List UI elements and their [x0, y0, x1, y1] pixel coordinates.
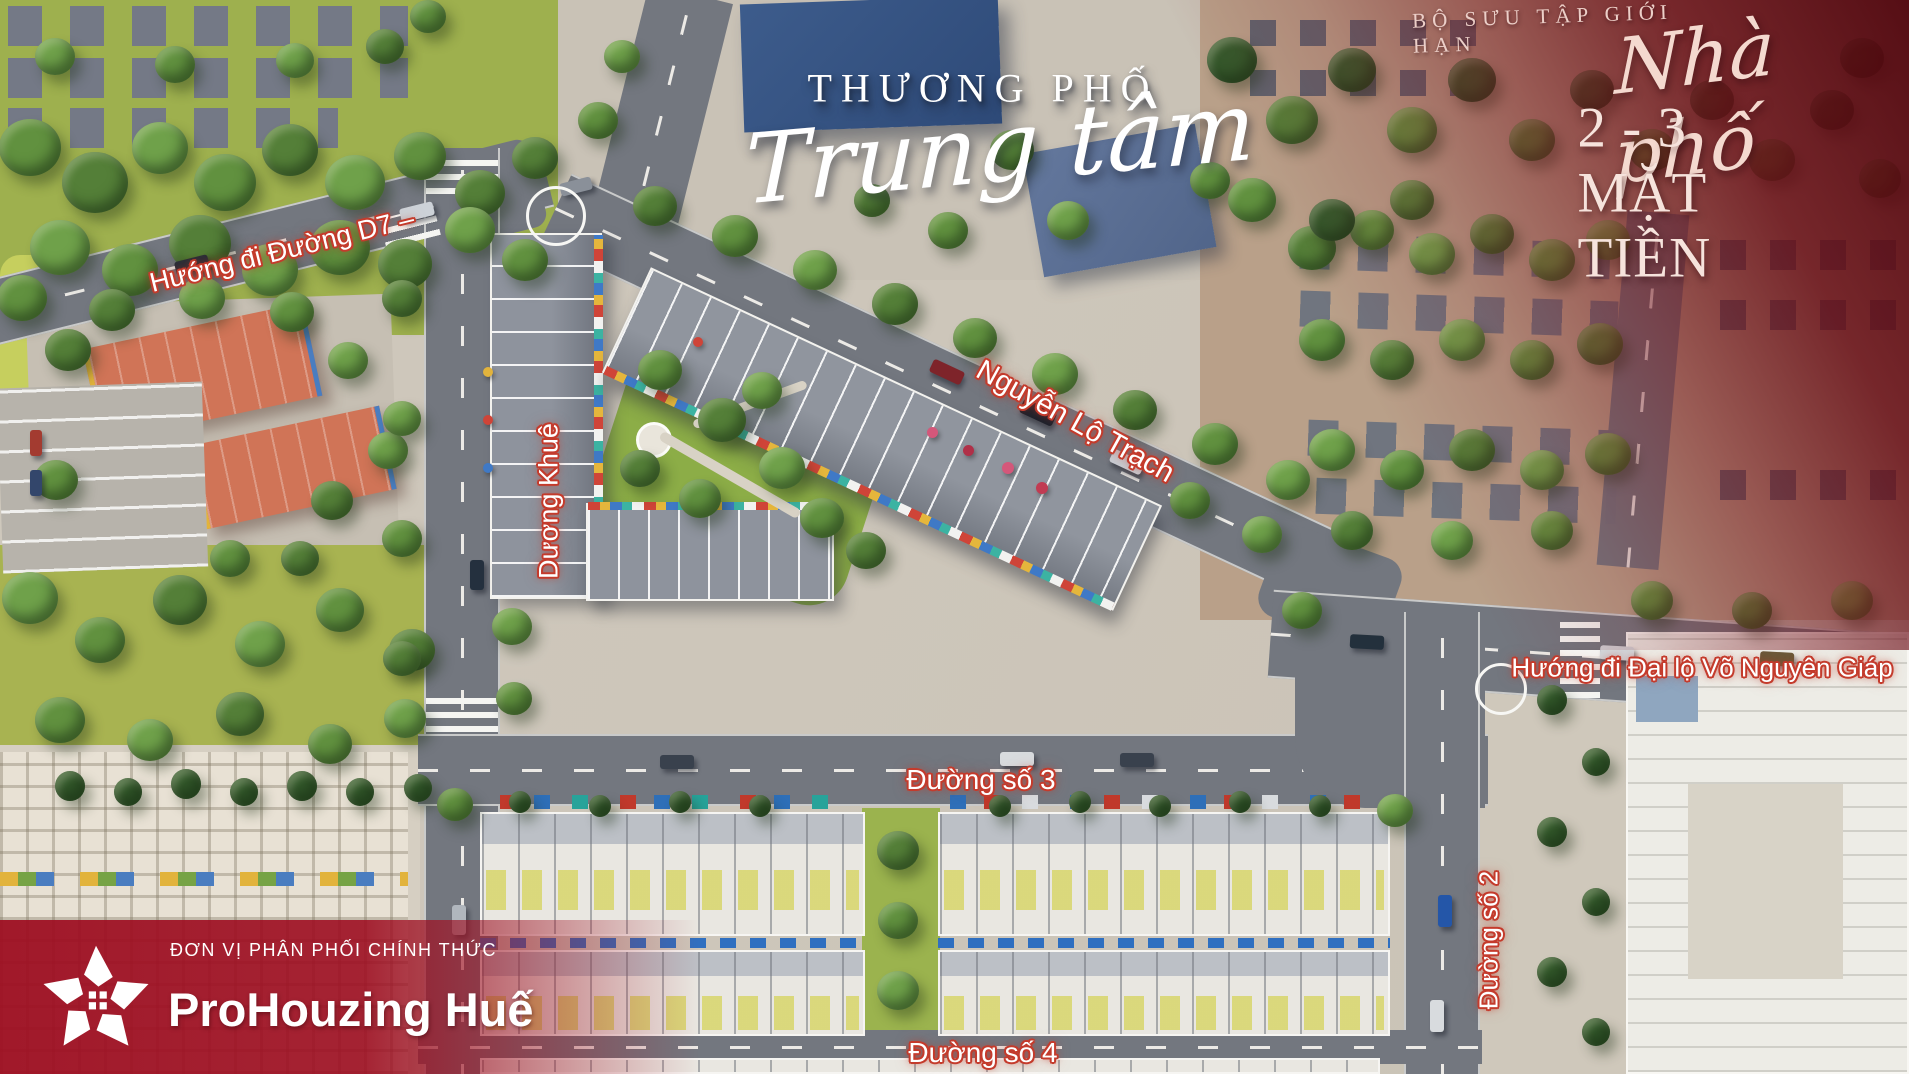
road-label-duong-khue: Dương Khuê [534, 423, 565, 579]
car [1350, 634, 1385, 650]
car [1438, 895, 1452, 927]
car [929, 358, 966, 385]
car [30, 430, 42, 456]
car [470, 560, 484, 590]
road-label-so-3: Đường số 3 [906, 764, 1055, 796]
car [30, 470, 42, 496]
umbrella-dot [1002, 462, 1014, 474]
umbrella-dot [693, 337, 703, 347]
umbrella-dot [483, 463, 493, 473]
umbrella-dot [1036, 482, 1048, 494]
car [1430, 1000, 1444, 1032]
aerial-masterplan-poster: THƯƠNG PHỐ Trung tâm BỘ SƯU TẬP GIỚI HẠN… [0, 0, 1909, 1074]
umbrella-dot [483, 367, 493, 377]
distributor-name: ProHouzing Huế [168, 982, 534, 1037]
umbrella-dot [483, 415, 493, 425]
road-label-vo-nguyen-giap: Hướng đi Đại lộ Võ Nguyên Giáp [1511, 653, 1892, 684]
distributor-tagline: ĐƠN VỊ PHÂN PHỐI CHÍNH THỨC [170, 940, 497, 961]
umbrella-dot [963, 445, 974, 456]
car [660, 755, 694, 769]
umbrella-dot [927, 427, 938, 438]
car [452, 905, 466, 935]
road-label-so-4: Đường số 4 [908, 1037, 1057, 1069]
car [1120, 753, 1154, 767]
roundabout-marker [526, 186, 586, 246]
road-label-so-2: Đường số 2 [1474, 871, 1505, 1010]
prohouzing-logo-icon [36, 936, 156, 1066]
collection-headline: 2 - 3 MẶT TIỀN [1578, 96, 1799, 291]
